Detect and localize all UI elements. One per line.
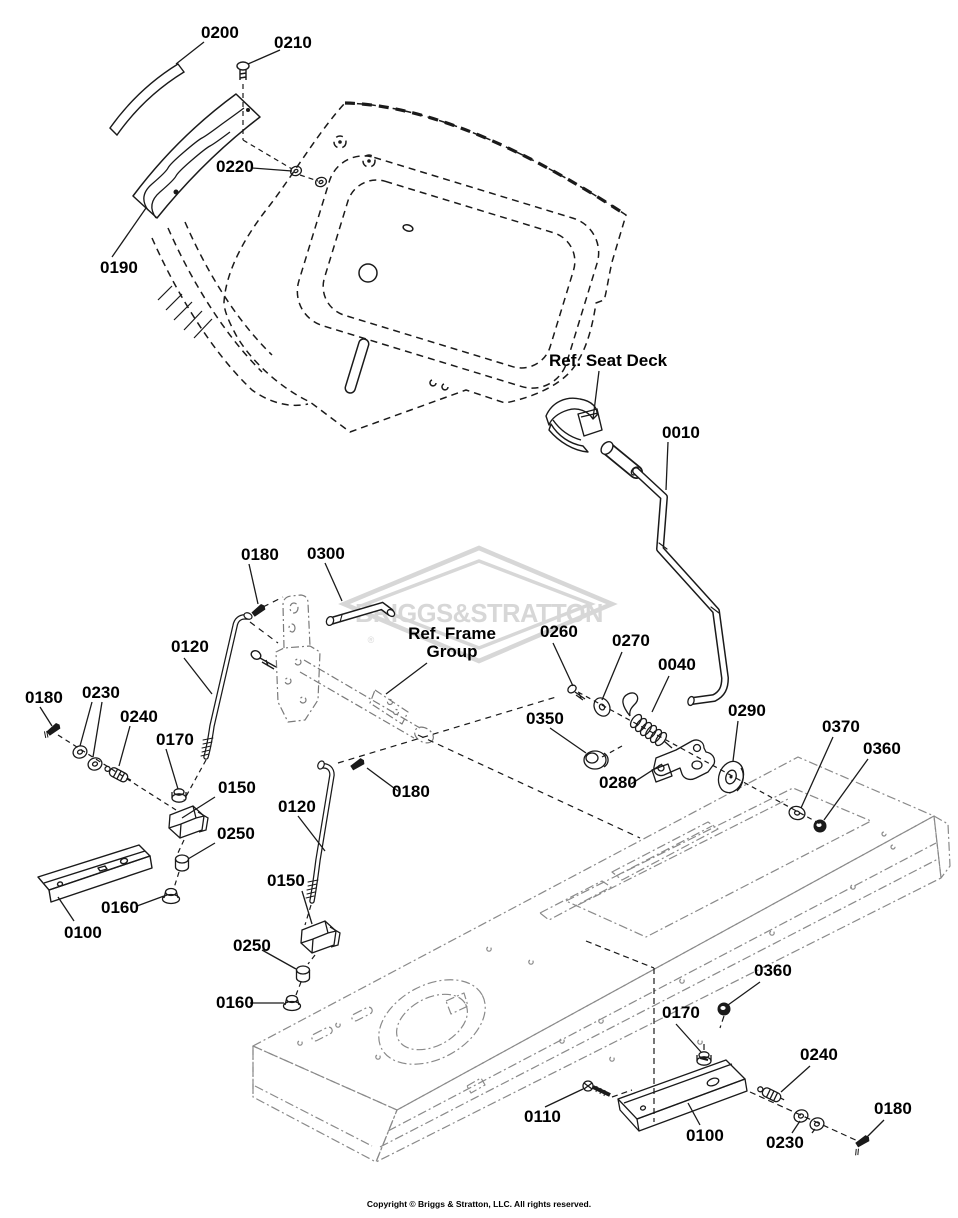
part-label-0180: 0180 — [874, 1100, 912, 1118]
part-label-ref-frame-group: Ref. Frame Group — [396, 625, 508, 661]
seat-pan-reference — [152, 103, 626, 432]
part-label-0260: 0260 — [540, 623, 578, 641]
part-label-0150: 0150 — [218, 779, 256, 797]
copyright-text: Copyright © Briggs & Stratton, LLC. All … — [0, 1199, 958, 1209]
part-label-0220: 0220 — [216, 158, 254, 176]
part-label-0350: 0350 — [526, 710, 564, 728]
part-label-0110: 0110 — [524, 1108, 561, 1126]
part-label-0180: 0180 — [241, 546, 279, 564]
part-label-0370: 0370 — [822, 718, 860, 736]
parts-diagram-page: BRIGGS&STRATTON ® — [0, 0, 958, 1218]
part-label-0240: 0240 — [120, 708, 158, 726]
part-label-0180: 0180 — [392, 783, 430, 801]
part-label-0170: 0170 — [662, 1004, 700, 1022]
part-label-0300: 0300 — [307, 545, 345, 563]
left-hardware — [58, 735, 208, 904]
part-label-0120: 0120 — [278, 798, 316, 816]
part-label-0360: 0360 — [754, 962, 792, 980]
grommet-0220 — [289, 165, 327, 188]
spacer-0250-lower — [297, 966, 310, 982]
part-label-0170: 0170 — [156, 731, 194, 749]
part-label-0120: 0120 — [171, 638, 209, 656]
part-label-0040: 0040 — [658, 656, 696, 674]
nut-0170-upper — [172, 789, 186, 802]
plate-0100-left — [38, 845, 152, 902]
part-label-0190: 0190 — [100, 259, 138, 277]
part-label-0230: 0230 — [766, 1134, 804, 1152]
part-label-0160: 0160 — [101, 899, 139, 917]
part-label-0160: 0160 — [216, 994, 254, 1012]
diagram-line-art: BRIGGS&STRATTON ® — [0, 0, 958, 1218]
nut-0160-upper — [163, 889, 180, 904]
bolt-0110 — [583, 1081, 610, 1096]
seat-spring-bracket-0190 — [133, 94, 260, 218]
right-assembly — [566, 683, 826, 832]
part-label-0010: 0010 — [662, 424, 700, 442]
part-label-0180: 0180 — [25, 689, 63, 707]
part-label-0250: 0250 — [233, 937, 271, 955]
part-label-0100: 0100 — [64, 924, 102, 942]
seat-deck-wedge — [546, 398, 602, 452]
bolt-0260 — [566, 683, 585, 700]
screw-0180-icons — [42, 604, 873, 1157]
nut-0160-lower — [284, 996, 301, 1011]
watermark-registered-icon: ® — [368, 635, 375, 645]
trunnion-0150-upper — [169, 806, 208, 838]
part-label-ref-seat-deck: Ref. Seat Deck — [549, 352, 667, 370]
part-label-0200: 0200 — [201, 24, 239, 42]
part-label-0230: 0230 — [82, 684, 120, 702]
part-label-0280: 0280 — [599, 774, 637, 792]
nut-0170-lower — [697, 1052, 711, 1065]
bolt-on-frame-group — [250, 649, 276, 669]
part-label-0270: 0270 — [612, 632, 650, 650]
washer-0370 — [788, 805, 807, 822]
part-label-0150: 0150 — [267, 872, 305, 890]
part-label-0240: 0240 — [800, 1046, 838, 1064]
part-label-0250: 0250 — [217, 825, 255, 843]
part-label-0290: 0290 — [728, 702, 766, 720]
washers-0230-lower — [792, 1108, 825, 1132]
frame-reference — [253, 757, 950, 1162]
spacer-0250-upper — [176, 855, 189, 871]
plate-0100-bottom — [618, 1060, 747, 1131]
control-rod-0120-upper — [201, 612, 253, 757]
part-label-0210: 0210 — [274, 34, 312, 52]
trunnion-0150-lower — [301, 921, 340, 953]
seat-trim-strip-0200 — [110, 64, 184, 135]
spring-pin-0240-upper — [103, 764, 132, 785]
part-label-0100: 0100 — [686, 1127, 724, 1145]
plug-0350 — [584, 751, 608, 769]
bottom-hardware — [583, 941, 860, 1142]
lower-rod-hardware — [284, 905, 341, 1011]
pulley-0290 — [714, 758, 747, 796]
spring-0040 — [623, 693, 672, 748]
part-label-0360: 0360 — [863, 740, 901, 758]
